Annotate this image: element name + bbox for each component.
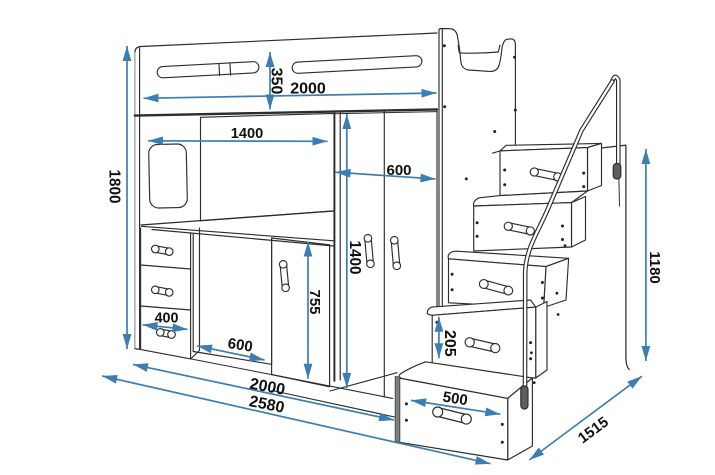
svg-text:1400: 1400 bbox=[346, 240, 363, 274]
svg-text:1800: 1800 bbox=[106, 169, 123, 203]
svg-text:755: 755 bbox=[306, 289, 323, 314]
svg-text:1515: 1515 bbox=[575, 414, 612, 448]
svg-text:1180: 1180 bbox=[646, 251, 663, 284]
svg-text:400: 400 bbox=[155, 310, 179, 326]
svg-text:205: 205 bbox=[441, 330, 458, 357]
svg-text:600: 600 bbox=[386, 162, 411, 179]
svg-text:350: 350 bbox=[268, 68, 285, 95]
svg-text:1400: 1400 bbox=[231, 126, 263, 142]
svg-text:2000: 2000 bbox=[290, 81, 326, 98]
